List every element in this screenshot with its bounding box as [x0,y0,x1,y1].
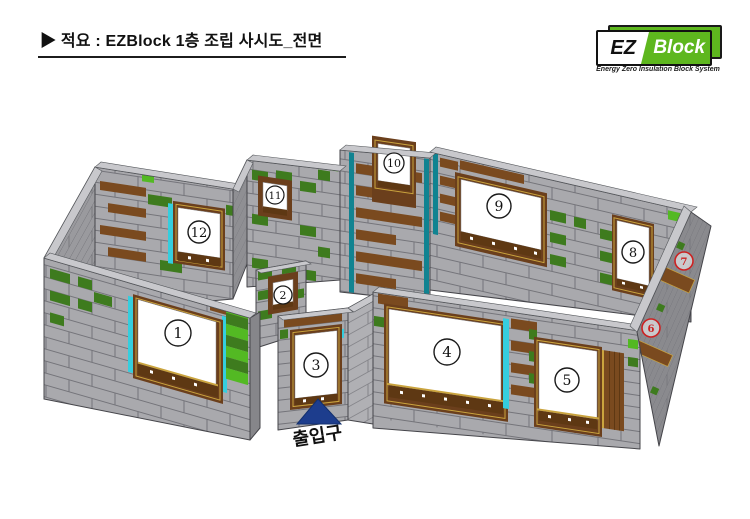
label-6-red: 6 [642,319,660,337]
label-3: 3 [304,353,328,377]
label-4: 4 [434,339,460,365]
svg-text:2: 2 [280,289,287,302]
label-8: 8 [622,241,644,263]
title-underline [38,56,346,58]
ezblock-logo: EZ Block Energy Zero Insulation Block Sy… [596,25,720,75]
svg-text:1: 1 [173,324,183,342]
svg-text:12: 12 [191,226,208,241]
svg-text:5: 5 [563,373,572,389]
label-11: 11 [266,186,284,204]
svg-text:7: 7 [681,257,688,268]
corner-column [250,312,260,440]
page: 1 2 3 4 5 8 9 10 11 12 6 7 출입구 ▶ 적요 : EZ… [0,0,750,519]
logo-block-text: Block [648,32,710,64]
label-12: 12 [188,221,210,243]
svg-text:11: 11 [269,191,282,202]
page-title: ▶ 적요 : EZBlock 1층 조립 사시도_전면 [40,27,322,51]
logo-ez-text: EZ [598,32,648,64]
logo-tagline: Energy Zero Insulation Block System [596,66,720,73]
svg-text:3: 3 [312,358,321,374]
svg-text:8: 8 [629,246,637,261]
svg-text:6: 6 [648,324,655,335]
label-9: 9 [487,194,511,218]
svg-text:9: 9 [495,199,504,215]
label-10: 10 [384,153,404,173]
label-1: 1 [165,320,191,346]
svg-text:4: 4 [442,343,452,361]
label-5: 5 [555,368,579,392]
logo-main-box: EZ Block [596,30,712,66]
label-7-red: 7 [675,252,693,270]
label-2: 2 [274,286,292,304]
assembly-diagram: 1 2 3 4 5 8 9 10 11 12 6 7 출입구 [0,0,750,519]
svg-text:10: 10 [387,157,401,170]
